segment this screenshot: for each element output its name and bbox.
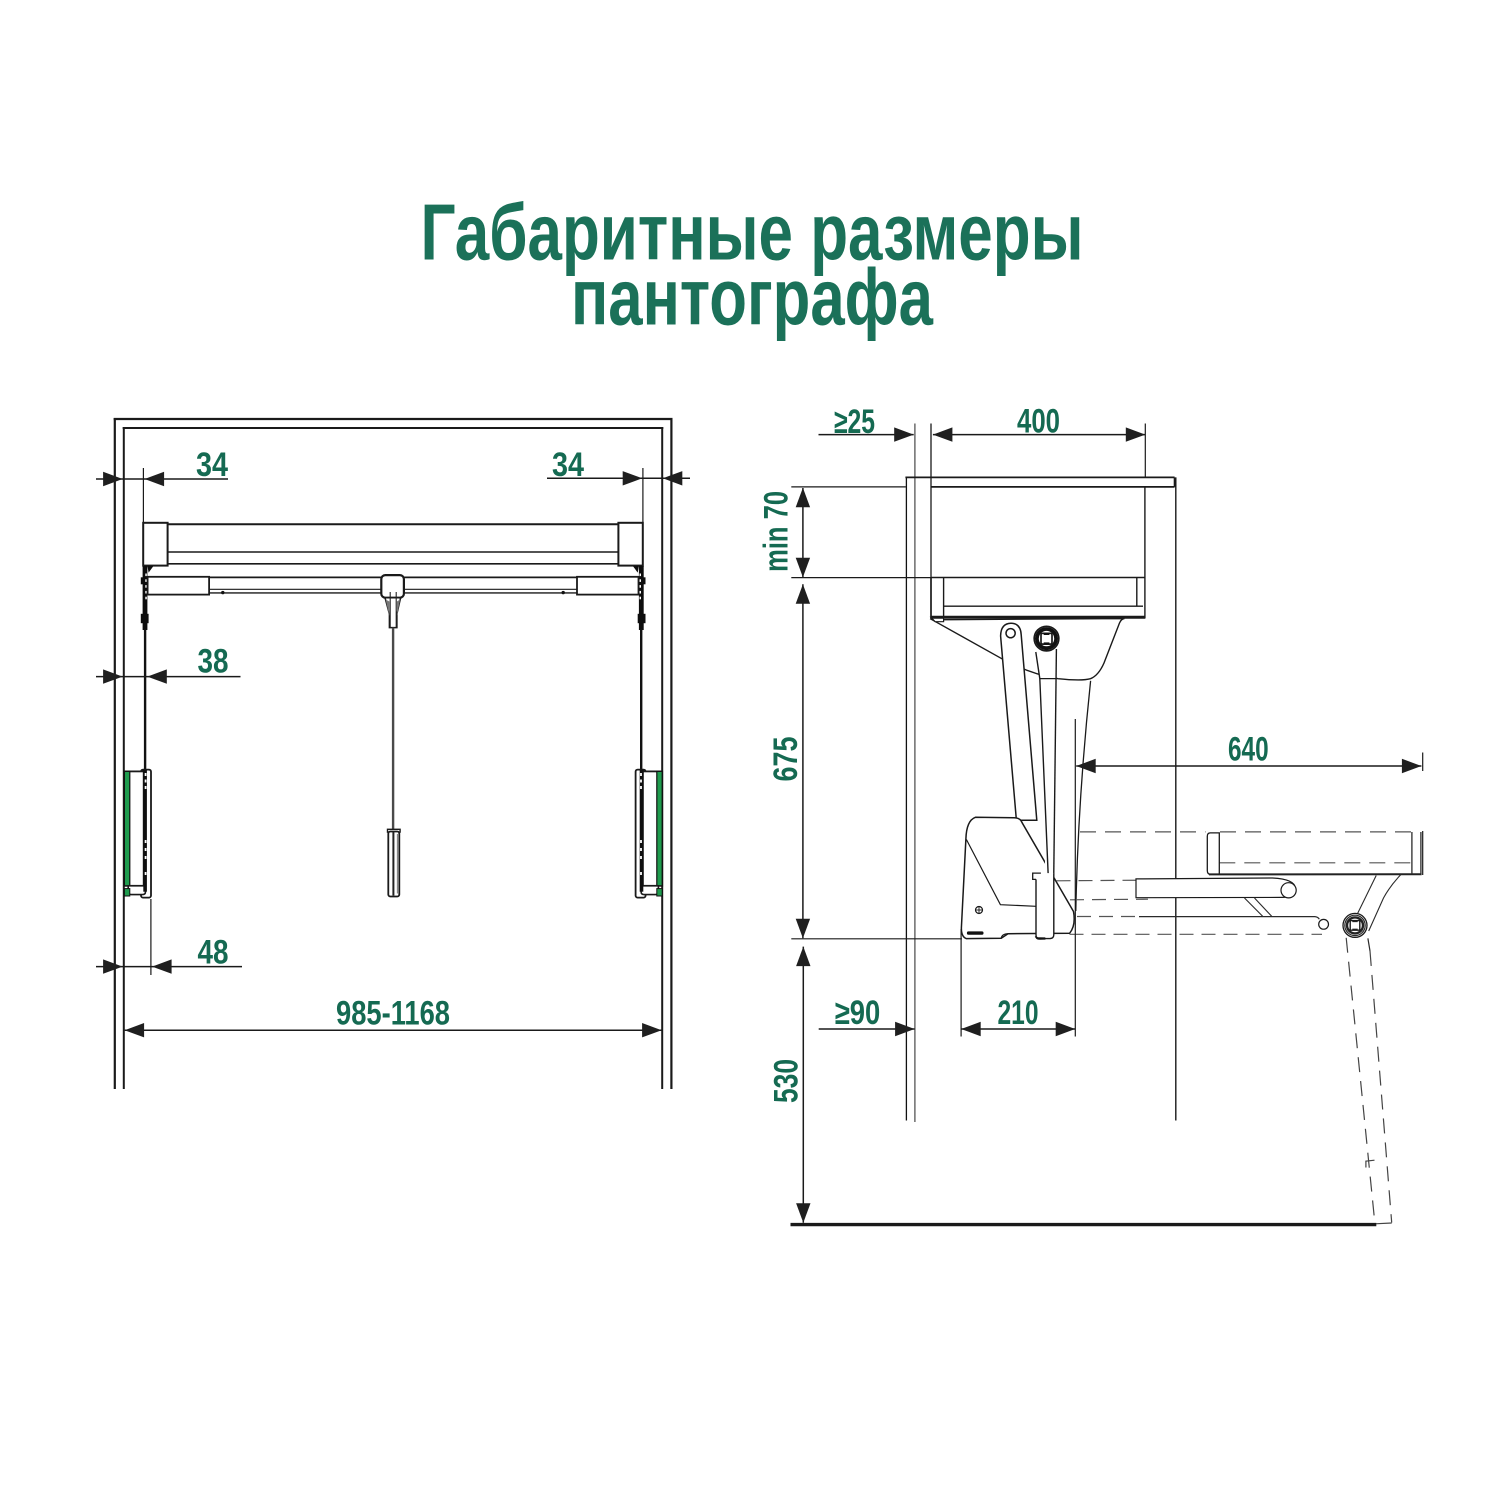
svg-text:38: 38 — [198, 643, 229, 681]
svg-text:530: 530 — [768, 1059, 806, 1103]
svg-text:34: 34 — [196, 446, 228, 484]
svg-text:min 70: min 70 — [758, 491, 796, 572]
svg-text:400: 400 — [1017, 403, 1060, 441]
svg-text:≥25: ≥25 — [834, 403, 875, 441]
svg-text:985-1168: 985-1168 — [336, 995, 450, 1033]
svg-text:640: 640 — [1228, 731, 1269, 769]
svg-text:34: 34 — [552, 446, 584, 484]
svg-text:48: 48 — [198, 934, 229, 972]
svg-text:210: 210 — [998, 994, 1039, 1032]
svg-text:пантографа: пантографа — [571, 253, 933, 342]
svg-text:675: 675 — [767, 737, 805, 782]
svg-text:≥90: ≥90 — [835, 994, 881, 1032]
